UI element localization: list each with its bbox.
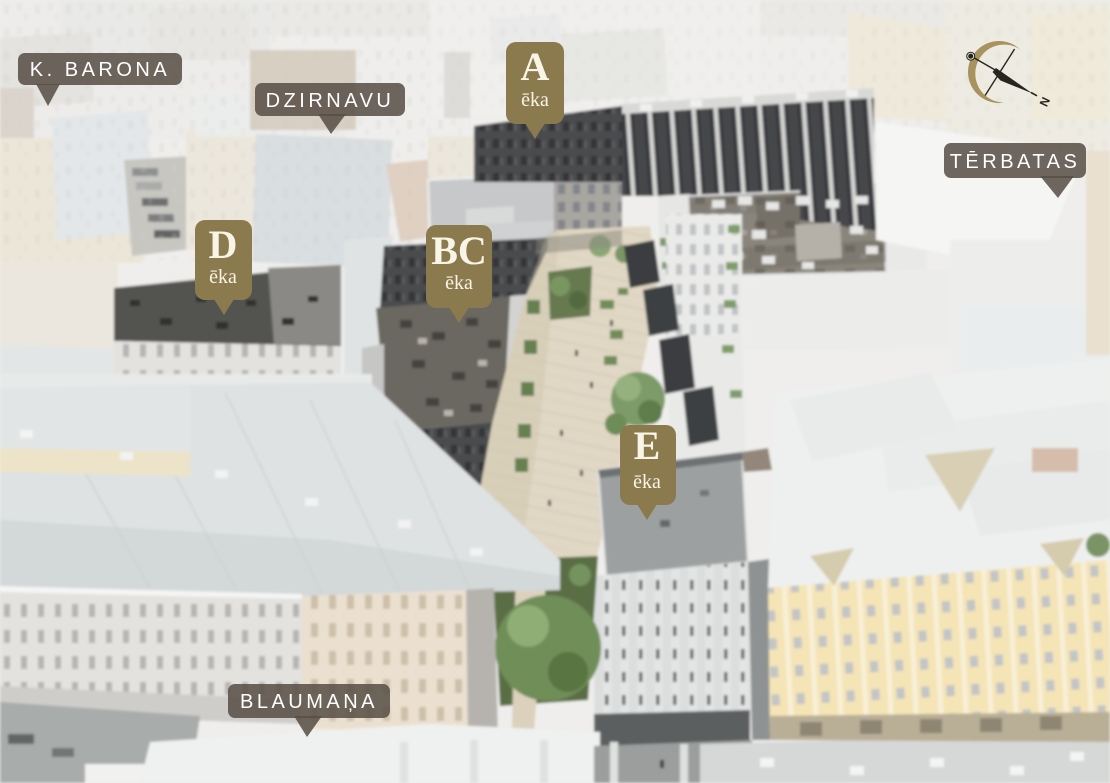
svg-text:DZIRNAVU: DZIRNAVU bbox=[266, 90, 395, 112]
svg-text:BLAUMAŅA: BLAUMAŅA bbox=[240, 691, 378, 713]
svg-text:K. BARONA: K. BARONA bbox=[30, 59, 170, 81]
svg-text:TĒRBATAS: TĒRBATAS bbox=[950, 150, 1081, 173]
svg-text:D: D bbox=[209, 222, 238, 267]
svg-text:A: A bbox=[521, 44, 550, 89]
svg-text:ēka: ēka bbox=[633, 471, 661, 493]
svg-text:ēka: ēka bbox=[521, 89, 549, 111]
svg-text:ēka: ēka bbox=[209, 266, 237, 288]
svg-text:E: E bbox=[634, 423, 661, 468]
svg-text:ēka: ēka bbox=[445, 272, 473, 294]
svg-text:BC: BC bbox=[431, 228, 487, 273]
